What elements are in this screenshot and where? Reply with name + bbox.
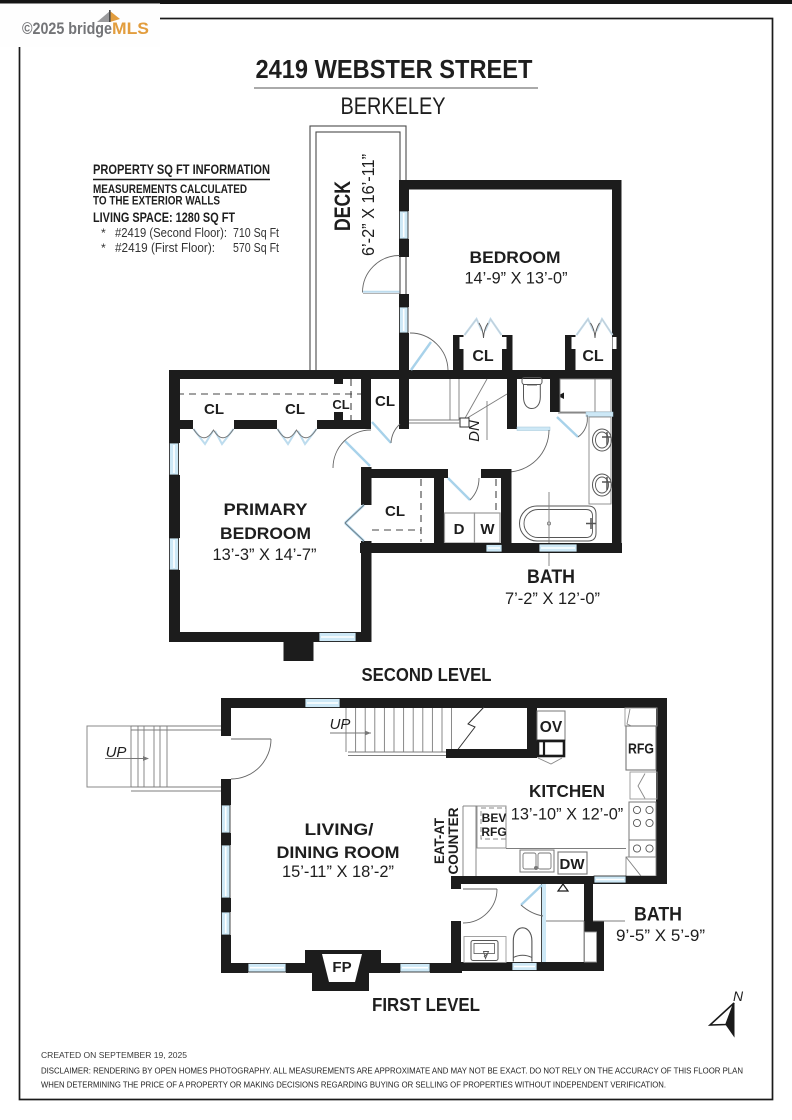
svg-text:CL: CL bbox=[375, 393, 395, 410]
svg-text:N: N bbox=[733, 988, 744, 1004]
svg-text:CL: CL bbox=[204, 401, 224, 418]
svg-text:UP: UP bbox=[330, 716, 351, 733]
svg-text:7’-2” X 12’-0”: 7’-2” X 12’-0” bbox=[505, 590, 600, 608]
svg-text:LIVING/: LIVING/ bbox=[305, 820, 374, 839]
svg-text:BATH: BATH bbox=[527, 566, 575, 588]
svg-text:PRIMARY: PRIMARY bbox=[224, 500, 309, 519]
svg-text:CL: CL bbox=[582, 348, 604, 365]
svg-text:KITCHEN: KITCHEN bbox=[529, 781, 605, 801]
svg-text:13’-3” X 14’-7”: 13’-3” X 14’-7” bbox=[213, 546, 317, 564]
svg-text:DECK: DECK bbox=[330, 180, 355, 231]
svg-text:570 Sq Ft: 570 Sq Ft bbox=[233, 241, 279, 255]
svg-text:RFG: RFG bbox=[481, 825, 506, 839]
svg-text:*: * bbox=[101, 226, 106, 240]
svg-text:CL: CL bbox=[472, 348, 494, 365]
svg-text:RFG: RFG bbox=[628, 741, 654, 758]
svg-text:BEV: BEV bbox=[482, 811, 507, 825]
svg-text:*: * bbox=[101, 241, 106, 255]
svg-text:DN: DN bbox=[466, 420, 483, 442]
svg-text:6’-2” X 16’-11”: 6’-2” X 16’-11” bbox=[358, 154, 378, 256]
svg-text:CL: CL bbox=[332, 397, 349, 412]
svg-text:710 Sq Ft: 710 Sq Ft bbox=[233, 226, 279, 240]
svg-text:BERKELEY: BERKELEY bbox=[341, 93, 446, 120]
svg-text:9’-5” X 5’-9”: 9’-5” X 5’-9” bbox=[616, 927, 705, 945]
svg-text:DISCLAIMER: RENDERING BY OPEN: DISCLAIMER: RENDERING BY OPEN HOMES PHOT… bbox=[41, 1066, 743, 1076]
svg-text:14’-9” X 13’-0”: 14’-9” X 13’-0” bbox=[465, 270, 568, 288]
svg-text:WHEN DETERMINING THE PRICE OF: WHEN DETERMINING THE PRICE OF A PROPERTY… bbox=[41, 1080, 666, 1090]
svg-text:CL: CL bbox=[385, 503, 405, 520]
svg-text:PROPERTY SQ FT INFORMATION: PROPERTY SQ FT INFORMATION bbox=[93, 162, 270, 177]
svg-text:CREATED ON SEPTEMBER 19, 2025: CREATED ON SEPTEMBER 19, 2025 bbox=[41, 1050, 187, 1060]
svg-text:D: D bbox=[454, 521, 465, 538]
svg-text:FP: FP bbox=[332, 959, 351, 976]
svg-text:COUNTER: COUNTER bbox=[446, 807, 461, 874]
svg-text:FIRST LEVEL: FIRST LEVEL bbox=[372, 995, 480, 1015]
svg-text:CL: CL bbox=[285, 401, 305, 418]
svg-text:BEDROOM: BEDROOM bbox=[470, 248, 561, 267]
svg-text:©2025 bridge: ©2025 bridge bbox=[22, 20, 112, 38]
svg-text:15’-11” X 18’-2”: 15’-11” X 18’-2” bbox=[282, 863, 394, 881]
svg-text:LIVING SPACE: 1280 SQ FT: LIVING SPACE: 1280 SQ FT bbox=[93, 210, 236, 225]
svg-text:DINING ROOM: DINING ROOM bbox=[277, 843, 400, 862]
svg-text:2419 WEBSTER STREET: 2419 WEBSTER STREET bbox=[256, 56, 533, 84]
svg-text:EAT-AT: EAT-AT bbox=[432, 817, 447, 864]
svg-text:TO THE EXTERIOR WALLS: TO THE EXTERIOR WALLS bbox=[93, 194, 220, 208]
svg-text:#2419 (Second Floor):: #2419 (Second Floor): bbox=[115, 226, 227, 240]
svg-text:W: W bbox=[480, 521, 495, 538]
svg-text:BATH: BATH bbox=[634, 904, 682, 926]
svg-text:DW: DW bbox=[560, 856, 586, 873]
svg-text:#2419 (First Floor):: #2419 (First Floor): bbox=[115, 241, 215, 255]
svg-text:SECOND LEVEL: SECOND LEVEL bbox=[362, 665, 492, 685]
svg-text:BEDROOM: BEDROOM bbox=[220, 524, 311, 543]
svg-text:13’-10” X 12’-0”: 13’-10” X 12’-0” bbox=[511, 805, 624, 824]
svg-text:MLS: MLS bbox=[112, 20, 149, 38]
svg-text:OV: OV bbox=[540, 719, 563, 736]
